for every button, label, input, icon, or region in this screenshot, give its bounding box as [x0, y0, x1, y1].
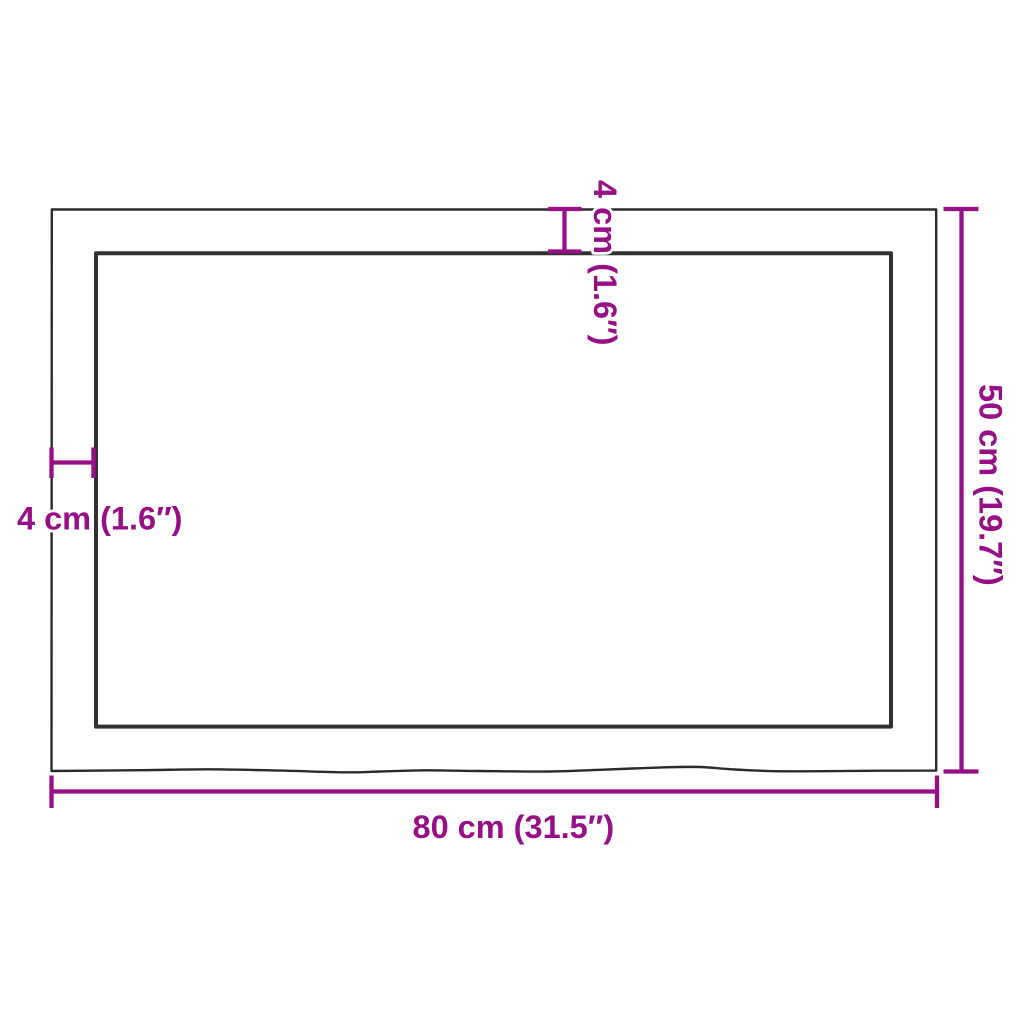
- svg-text:4 cm (1.6″): 4 cm (1.6″): [587, 180, 623, 346]
- svg-text:80 cm (31.5″): 80 cm (31.5″): [413, 809, 615, 845]
- svg-text:50 cm (19.7″): 50 cm (19.7″): [973, 384, 1009, 586]
- svg-text:4 cm (1.6″): 4 cm (1.6″): [17, 501, 183, 537]
